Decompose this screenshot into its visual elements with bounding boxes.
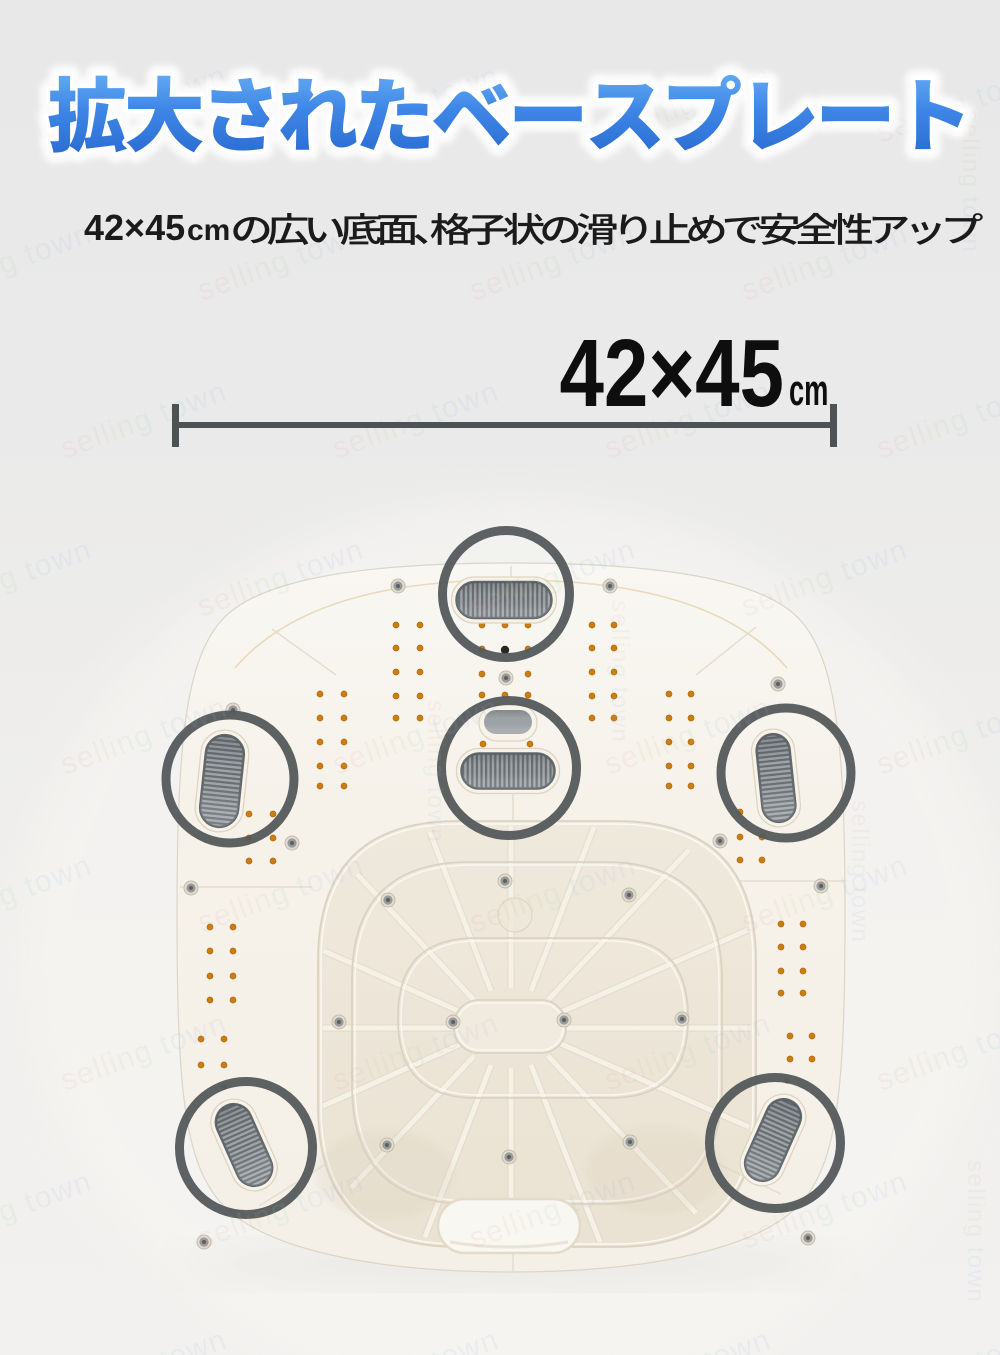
svg-text:selling town: selling town	[328, 375, 504, 466]
svg-text:selling town: selling town	[0, 217, 97, 308]
svg-text:42×45: 42×45	[559, 319, 784, 427]
svg-text:cm: cm	[789, 365, 828, 414]
svg-text:selling town: selling town	[56, 1323, 232, 1355]
svg-text:selling town: selling town	[56, 375, 232, 466]
svg-text:selling town: selling town	[846, 800, 873, 943]
svg-text:selling town: selling town	[872, 375, 1000, 466]
svg-text:selling town: selling town	[872, 1323, 1000, 1355]
svg-text:42×45: 42×45	[84, 207, 185, 248]
svg-text:cm: cm	[187, 214, 230, 247]
svg-text:selling town: selling town	[606, 600, 633, 743]
svg-text:selling town: selling town	[0, 1165, 97, 1256]
svg-text:selling town: selling town	[422, 700, 449, 843]
svg-text:selling town: selling town	[0, 533, 97, 624]
svg-text:selling town: selling town	[962, 1160, 989, 1303]
